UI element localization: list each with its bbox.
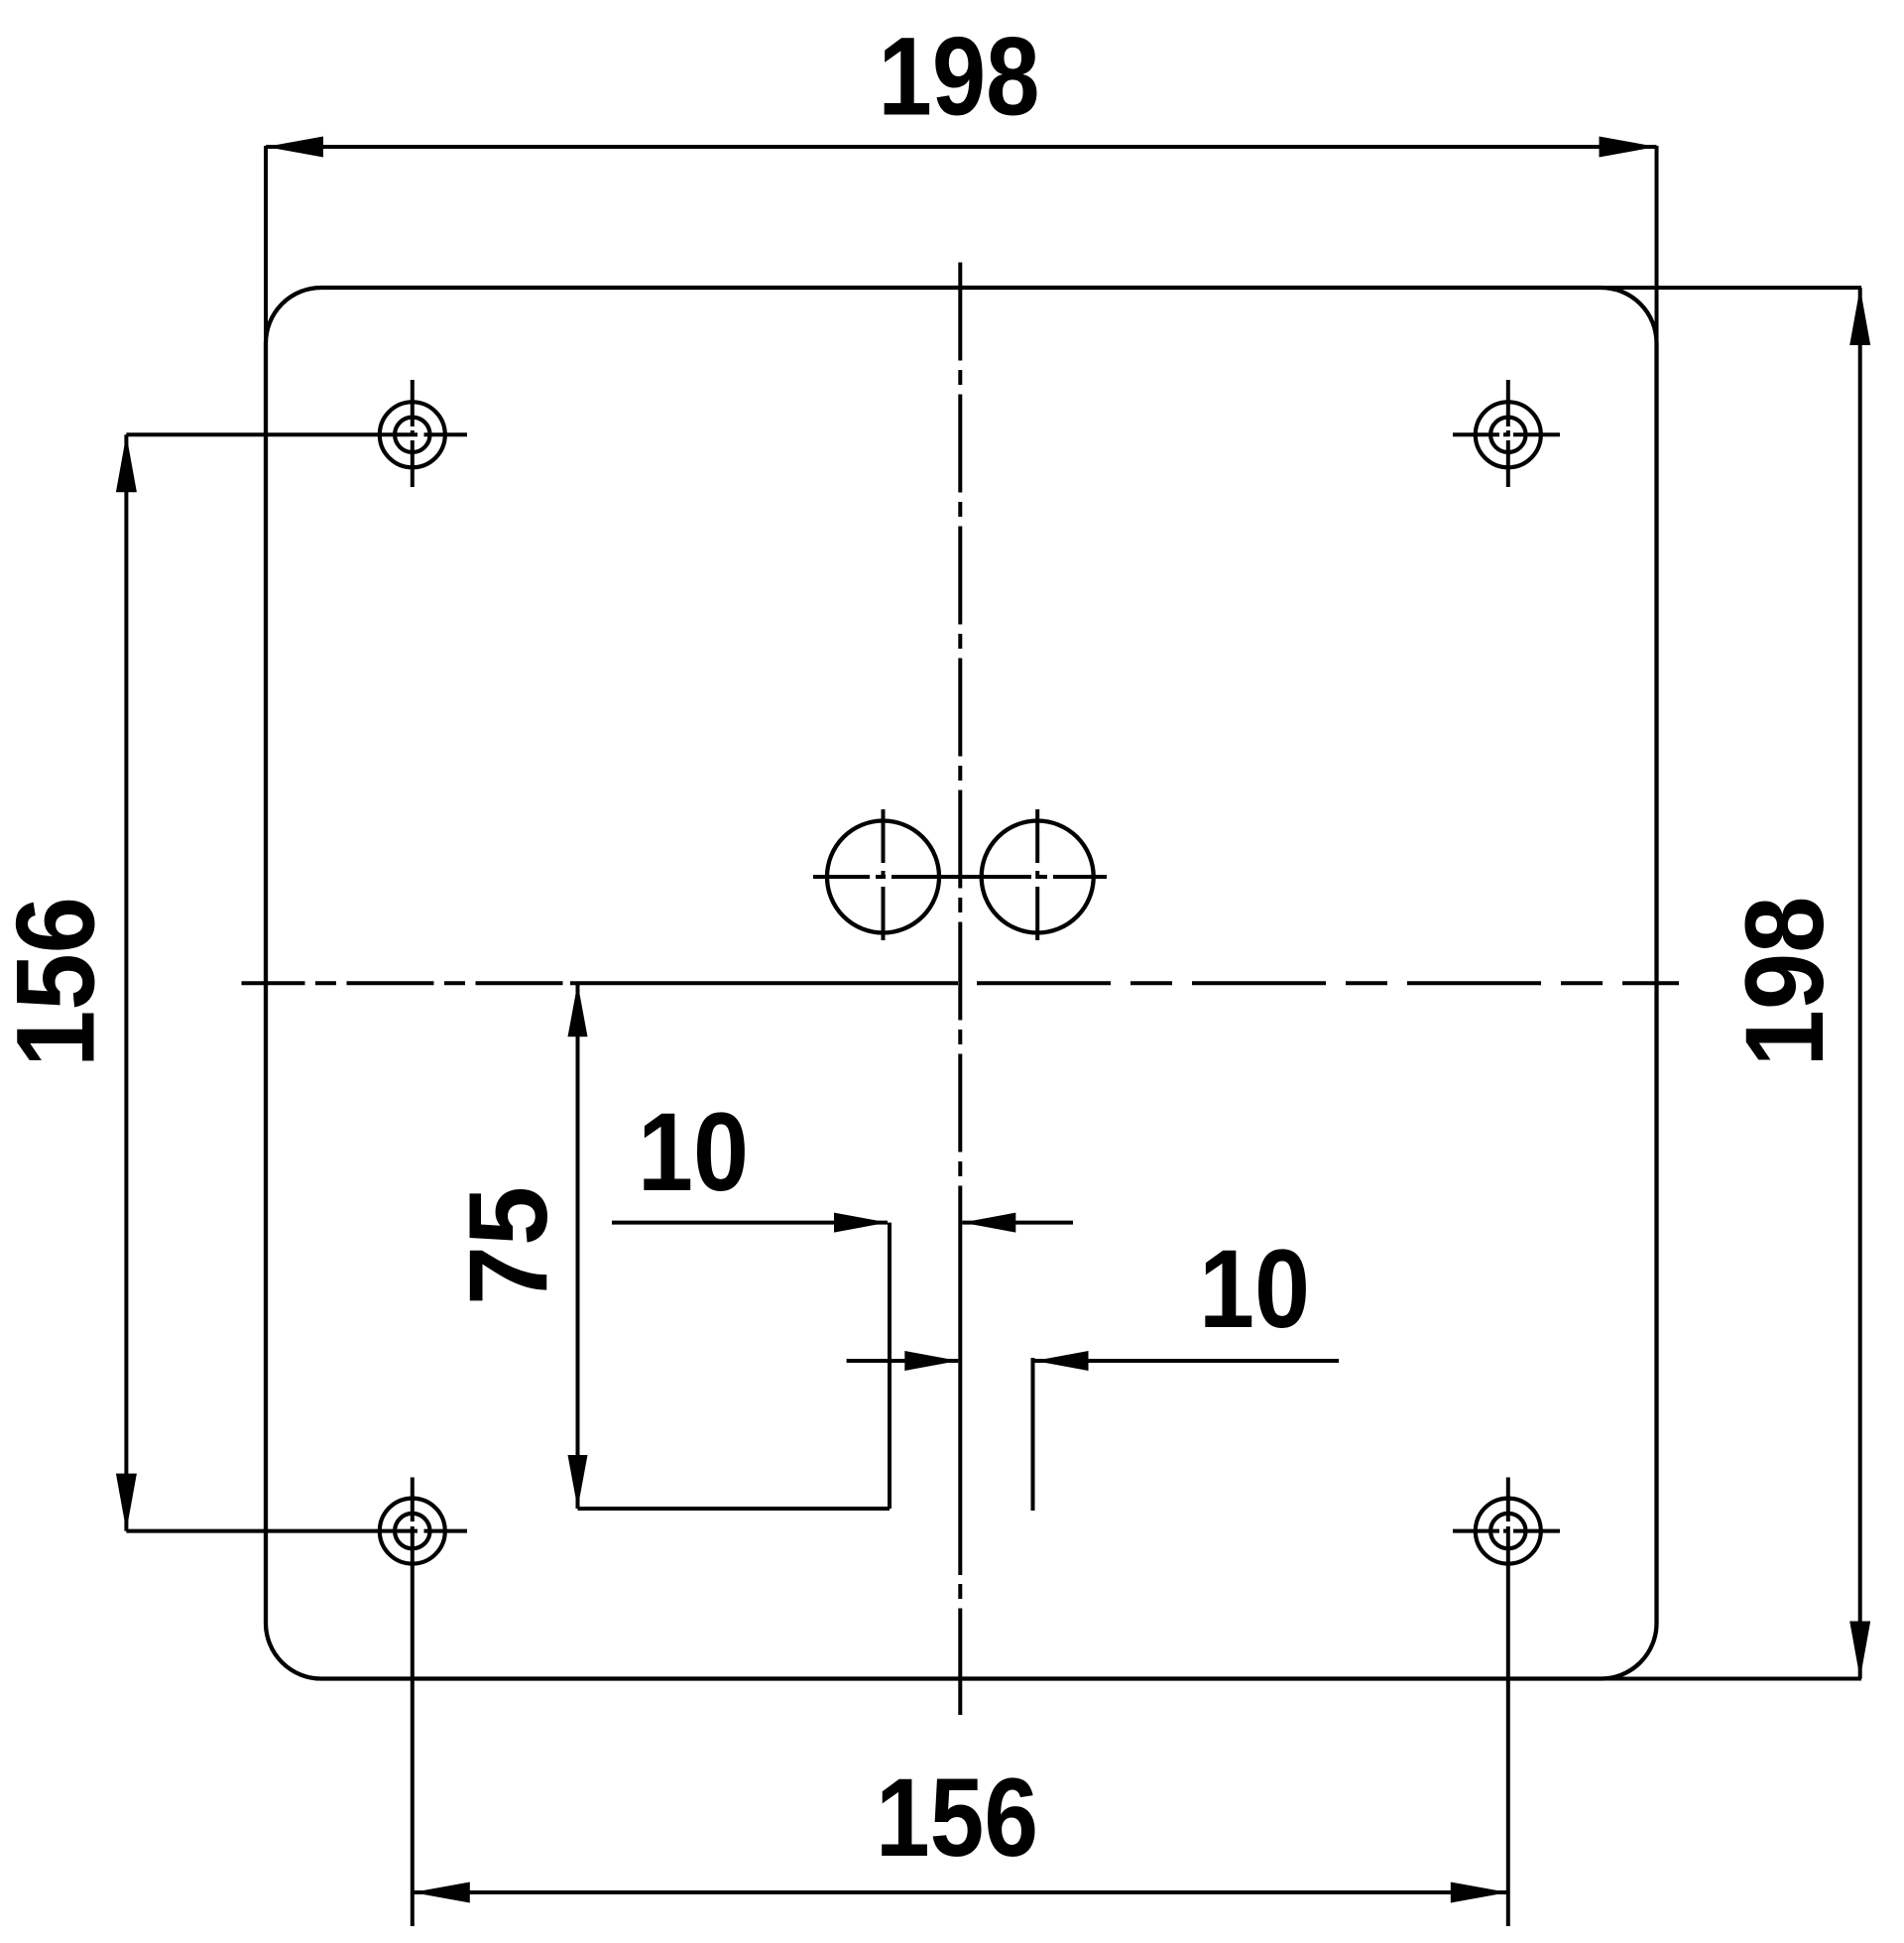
- svg-text:198: 198: [879, 15, 1040, 139]
- svg-text:156: 156: [876, 1756, 1038, 1880]
- svg-text:75: 75: [446, 1186, 570, 1305]
- svg-text:198: 198: [1723, 897, 1846, 1067]
- svg-text:10: 10: [638, 1090, 749, 1214]
- svg-text:156: 156: [0, 897, 118, 1067]
- svg-text:10: 10: [1199, 1227, 1310, 1351]
